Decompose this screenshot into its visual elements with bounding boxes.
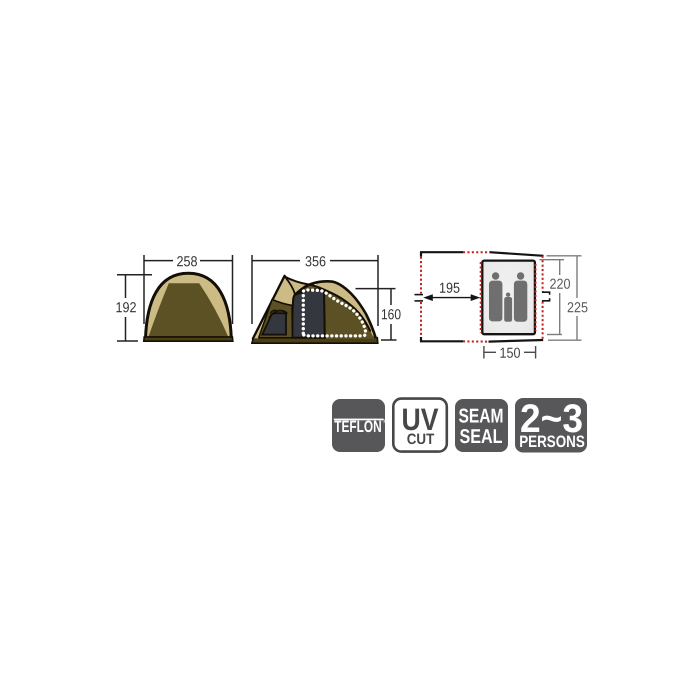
svg-text:258: 258 bbox=[176, 254, 197, 270]
svg-text:CUT: CUT bbox=[407, 431, 435, 448]
svg-text:220: 220 bbox=[549, 277, 570, 293]
svg-text:160: 160 bbox=[381, 307, 401, 323]
svg-text:356: 356 bbox=[305, 254, 326, 270]
svg-text:150: 150 bbox=[499, 346, 520, 362]
svg-text:225: 225 bbox=[567, 300, 588, 316]
svg-text:PERSONS: PERSONS bbox=[519, 433, 585, 451]
svg-text:195: 195 bbox=[439, 281, 460, 297]
svg-text:SEAM: SEAM bbox=[459, 406, 504, 428]
svg-text:SEAL: SEAL bbox=[460, 426, 503, 448]
svg-text:192: 192 bbox=[115, 300, 136, 316]
svg-text:®: ® bbox=[383, 419, 387, 425]
svg-text:TEFLON: TEFLON bbox=[334, 418, 382, 436]
